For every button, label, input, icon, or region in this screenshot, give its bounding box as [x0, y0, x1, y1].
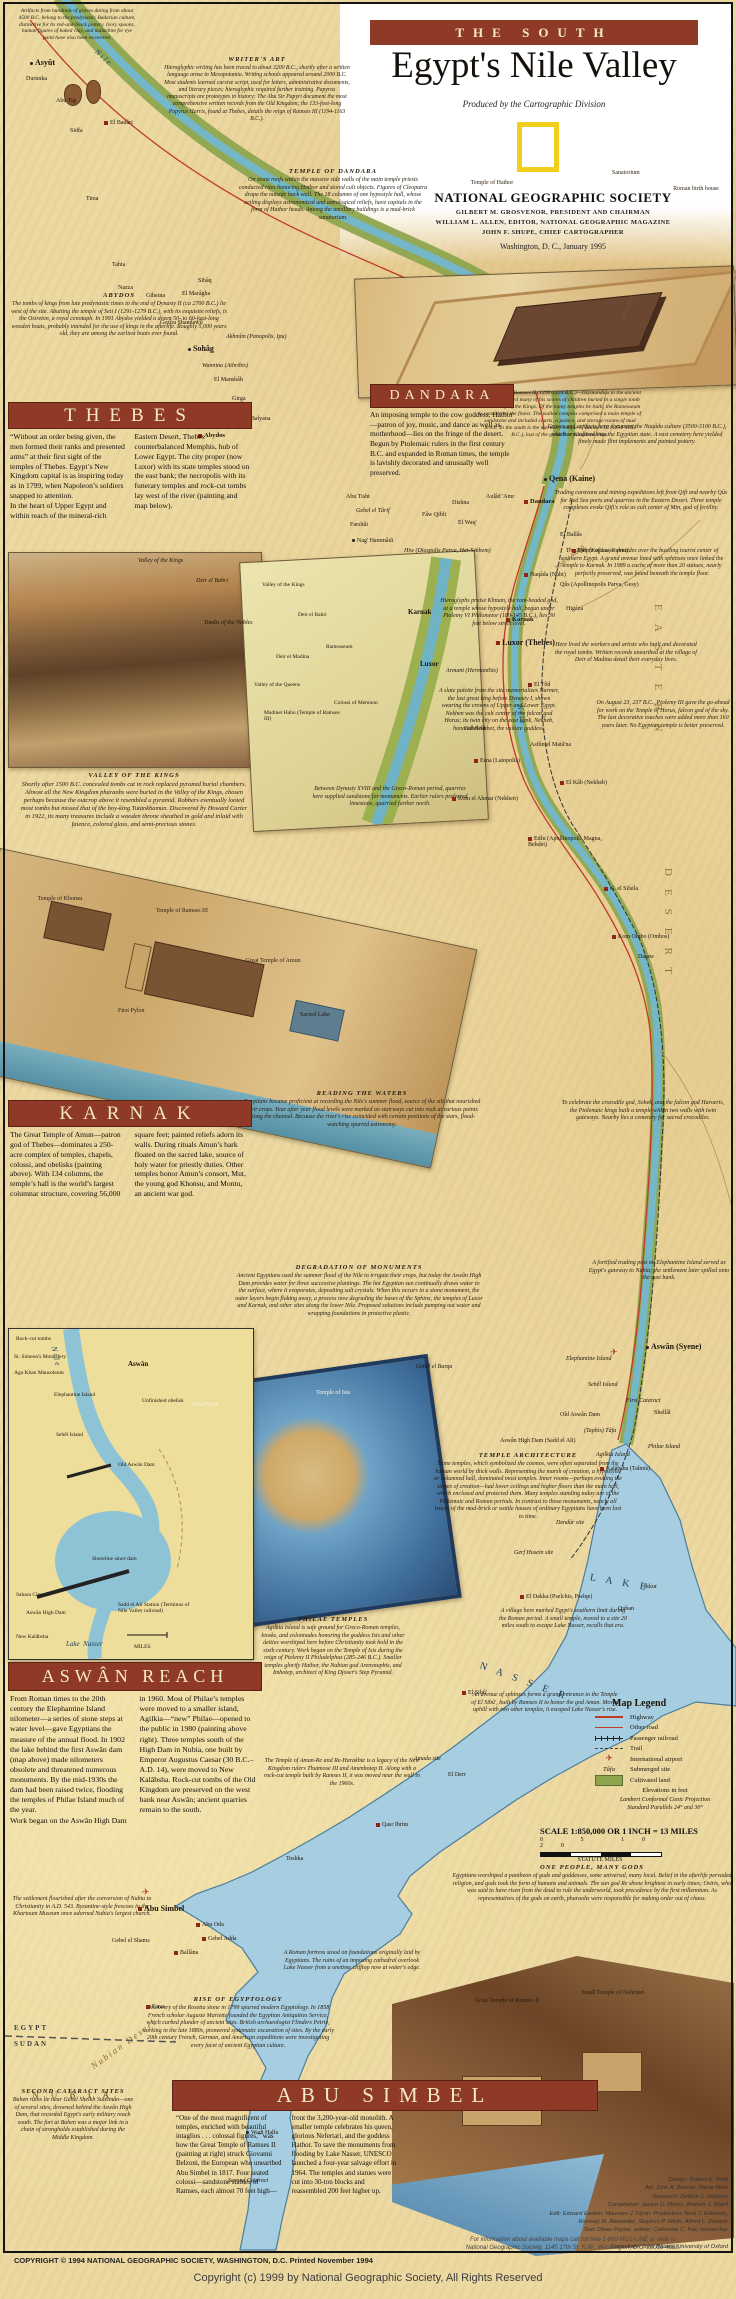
- caption-heading: DEGRADATION OF MONUMENTS: [234, 1264, 484, 1272]
- section-body-thebes: “Without an order being given, the men f…: [10, 432, 250, 548]
- caption-text: Agilkia Island is safe ground for Greco-…: [261, 1625, 404, 1676]
- map-label: Gebel el Târif: [356, 508, 390, 514]
- map-label: Durunka: [26, 76, 47, 82]
- map-label: El Sibû': [462, 1690, 487, 1696]
- map-label: Wannina (Athribis): [202, 363, 248, 369]
- map-label: Aswân (Syene): [646, 1342, 701, 1351]
- caption-text: Shortly after 1500 B.C. concealed tombs …: [21, 781, 247, 828]
- map-label: Qena (Kaine): [544, 474, 595, 483]
- map-label: Ballâna: [174, 1950, 198, 1956]
- map-label: Great Temple of Ramses II: [474, 1998, 540, 2005]
- road-symbol: [594, 1724, 624, 1732]
- map-label: Fâw Qibli: [422, 512, 446, 518]
- legend-label: Passenger railroad: [630, 1735, 678, 1742]
- map-label: Aswân: [128, 1360, 148, 1368]
- map-label: Elephantine Island: [566, 1356, 612, 1362]
- map-label: Dendûr site: [556, 1520, 584, 1526]
- map-label: Sihâq: [198, 278, 212, 284]
- map-label: EGYPT: [14, 2024, 48, 2032]
- map-label: Naqâda (Nubt): [524, 572, 566, 578]
- map-poster: THE SOUTH Egypt's Nile Valley Produced b…: [0, 0, 736, 2299]
- temple-structure: [43, 901, 112, 951]
- caption-text: Ancient Egyptians used the summer flood …: [235, 1273, 483, 1317]
- map-label: Sidfa: [70, 128, 83, 134]
- great-temple-of-amun-shape: [144, 941, 265, 1017]
- caption-heading: ONE PEOPLE, MANY GODS: [452, 1864, 732, 1872]
- map-label: Valley of the Queens: [254, 682, 300, 688]
- map-label: Amada site: [414, 1756, 441, 1762]
- caption-artifacts: Artifacts from hundreds of graves dating…: [16, 8, 138, 42]
- caption-village: A village here marked Egypt's southern l…: [498, 1608, 628, 1631]
- map-label: Akhmîm (Panopolis, Ipu): [226, 334, 287, 340]
- map-label: El Tôd: [528, 682, 550, 688]
- map-label: Abu Tig: [56, 98, 76, 104]
- sacred-lake-shape: [289, 1000, 345, 1042]
- caption-esna: Hieroglyphs praise Khnum, the ram-headed…: [440, 598, 558, 628]
- map-label: Sanatorium: [612, 170, 640, 177]
- legend-label: Cultivated land: [630, 1777, 670, 1784]
- map-label: Kalâbsha (Talmis): [600, 1466, 650, 1472]
- karnak-col1: The Great Temple of Amun—patron god of T…: [10, 1130, 121, 1198]
- map-legend: Map Legend Highway Other road Passenger …: [594, 1698, 736, 1813]
- map-label: El Ballâs: [560, 532, 582, 538]
- map-label: Abu Simbel: [138, 1904, 184, 1913]
- map-label: Luxor: [420, 660, 439, 668]
- legend-row-railroad: Passenger railroad: [594, 1734, 736, 1742]
- caption-one-people-many-gods: ONE PEOPLE, MANY GODSEgyptians worshiped…: [452, 1864, 732, 1903]
- map-label: Sahara City: [16, 1592, 42, 1598]
- map-label: Kom el Ahmar (Nekhen): [452, 796, 518, 802]
- caption-nekhen: A slate palette from the site memorializ…: [438, 688, 560, 733]
- legend-label: Trail: [630, 1745, 642, 1752]
- map-label: First Pylon: [192, 1402, 219, 1408]
- caption-text: Hieroglyphs praise Khnum, the ram-headed…: [440, 598, 558, 627]
- legend-row-highway: Highway: [594, 1713, 736, 1721]
- map-label: Old Aswân Dam: [560, 1412, 600, 1418]
- ordering-info: For information about available maps cal…: [418, 2236, 728, 2253]
- aswan-col2: Most of Philae’s temples were moved to a…: [140, 1694, 256, 1814]
- caption-heading: RISE OF EGYPTOLOGY: [140, 1996, 336, 2004]
- map-label: MILES: [134, 1644, 151, 1650]
- map-label: Asyût: [30, 58, 55, 67]
- section-header-dandara: DANDARA: [370, 384, 514, 408]
- section-header-thebes: THEBES: [8, 402, 252, 429]
- dateline: Washington, D. C., January 1995: [393, 242, 713, 251]
- legend-label: Other road: [630, 1724, 658, 1731]
- caption-reading-the-waters: READING THE WATERSEgyptians became profi…: [242, 1090, 482, 1129]
- caption-text: A village here marked Egypt's southern l…: [499, 1608, 627, 1629]
- map-label: Abu Tisht: [346, 494, 370, 500]
- legend-row-airport: ✈International airport: [594, 1755, 736, 1763]
- map-label: Gebelein: [464, 726, 486, 732]
- map-label: Gebel Adda: [202, 1936, 237, 1942]
- map-label: Armant (Hermonthis): [446, 668, 498, 674]
- map-label: Gezîra Shandawîl: [160, 320, 203, 326]
- page-title: Egypt's Nile Valley: [350, 47, 718, 86]
- copyright-1999: Copyright (c) 1999 by National Geographi…: [0, 2272, 736, 2284]
- caption-qift: Trading caravans and mining expeditions …: [552, 490, 730, 513]
- section-body-karnak: The Great Temple of Amun—patron god of T…: [10, 1130, 250, 1248]
- caption-quarries: Between Dynasty XVIII and the Greco-Roma…: [312, 786, 468, 809]
- map-label: Deir el Bahri: [298, 612, 327, 618]
- caption-temple-architecture: TEMPLE ARCHITECTUREStone temples, which …: [432, 1452, 624, 1521]
- map-label: SUDAN: [14, 2040, 48, 2048]
- national-geographic-logo-icon: [517, 122, 559, 172]
- map-label: Esna (Latopolis): [474, 758, 520, 764]
- map-label: Aswân High Dam: [26, 1610, 66, 1616]
- map-label: El Marâgha: [182, 291, 210, 297]
- map-label: Philae Island: [648, 1444, 680, 1450]
- submerged-site-sample: Tâfa: [594, 1766, 624, 1774]
- legend-elevations-note: Elevations in feet: [594, 1787, 736, 1794]
- map-label: El Kâb (Nekheb): [560, 780, 607, 786]
- scale-block: SCALE 1:850,000 OR 1 INCH = 13 MILES 0 5…: [540, 1826, 720, 1863]
- caption-degradation: DEGRADATION OF MONUMENTSAncient Egyptian…: [234, 1264, 484, 1318]
- dandara-temple-illustration: [354, 265, 736, 398]
- map-label: Karnak: [408, 608, 431, 616]
- map-label: Nag' Hammâdi: [352, 538, 393, 544]
- section-body-dandara: An imposing temple to the cow goddess, H…: [370, 410, 514, 477]
- map-label: Temple of Khonsu: [34, 896, 86, 903]
- caption-philae-temples: PHILAE TEMPLESAgilkia Island is safe gro…: [258, 1616, 408, 1678]
- caption-kom-ombo: To celebrate the crocodile god, Sobek, a…: [558, 1100, 728, 1123]
- map-label: Qûs (Apollinopolis Parva, Gesy): [560, 582, 646, 588]
- caption-text: A fortified trading post on Elephantine …: [589, 1260, 730, 1281]
- caption-heading: TEMPLE OF DANDARA: [238, 168, 428, 176]
- map-label: Sohâg: [188, 344, 214, 353]
- section-header-karnak: KARNAK: [8, 1100, 252, 1127]
- map-label: Gebel el Barqa: [416, 1364, 452, 1370]
- map-label: El Manshâh: [214, 377, 243, 383]
- section-header-aswan-reach: ASWÂN REACH: [8, 1662, 262, 1691]
- map-label: Great Temple of Amun: [238, 958, 308, 965]
- scale-text: SCALE 1:850,000 OR 1 INCH = 13 MILES: [540, 1826, 720, 1836]
- caption-heading: WRITER'S ART: [164, 56, 350, 64]
- map-label: Luxor (Thebes): [496, 638, 555, 647]
- map-label: Small Temple of Nefertari: [580, 1990, 646, 1997]
- karnak-col2: square feet; painted reliefs adorn its w…: [135, 1130, 246, 1198]
- caption-text: A slate palette from the site memorializ…: [439, 688, 559, 732]
- map-label: DESERT: [662, 868, 674, 987]
- legend-row-cultivated: Cultivated land: [594, 1776, 736, 1784]
- airport-icon: ✈: [594, 1755, 624, 1763]
- map-label: Gerf Husein site: [514, 1550, 553, 1556]
- map-label: Madinet Habu (Temple of Ramses III): [264, 710, 344, 722]
- pottery-illustration: [86, 80, 101, 104]
- map-label: N U B I A: [32, 2090, 114, 2100]
- map-label: Lake Nasser: [66, 1640, 103, 1648]
- caption-writers-art: WRITER'S ARTHieroglyphic writing has bee…: [164, 56, 350, 123]
- railroad-symbol: [594, 1734, 624, 1742]
- caption-rise-of-egyptology: RISE OF EGYPTOLOGYDiscovery of the Roset…: [140, 1996, 336, 2050]
- map-label: El Dakka (Pselchis, Pselqe): [520, 1594, 592, 1600]
- map-label: Sehêl Island: [588, 1382, 618, 1388]
- map-label: Hiw (Diospolis Parva, Het-Sekhem): [404, 548, 494, 554]
- map-label: New Kalâbsha: [16, 1634, 48, 1640]
- caption-text: Egyptians became proficient at recording…: [244, 1099, 481, 1128]
- trail-symbol: [594, 1745, 624, 1753]
- map-label: Higâza: [566, 606, 583, 612]
- map-label: Sehêl Island: [56, 1432, 83, 1438]
- map-label: Dandara: [524, 498, 555, 505]
- map-label: Tombs of the Nobles: [204, 620, 253, 626]
- caption-deir-el-madina: Here lived the workers and artists who b…: [552, 642, 700, 665]
- map-label: Colossi of Memnon: [334, 700, 378, 706]
- highway-symbol: [594, 1713, 624, 1721]
- legend-row-other-road: Other road: [594, 1724, 736, 1732]
- map-label: Daraw: [638, 954, 654, 960]
- caption-qasr-ibrim: A Roman fortress stood on foundations or…: [282, 1950, 422, 1973]
- caption-settlement: The settlement flourished after the conv…: [12, 1896, 152, 1919]
- thebes-col1: “Without an order being given, the men f…: [10, 432, 125, 520]
- map-label: Shoreline since dam: [92, 1556, 137, 1562]
- thebes-necropolis-painting: [8, 552, 262, 768]
- section-body-aswan: From Roman times to the 20th century the…: [10, 1694, 260, 1880]
- caption-text: Discovery of the Rosetta stone in 1799 s…: [142, 2005, 334, 2049]
- map-label: Agilkia Island: [596, 1452, 630, 1458]
- legend-row-submerged: TâfaSubmerged site: [594, 1766, 736, 1774]
- scale-units: STATUTE MILES: [540, 1857, 660, 1863]
- map-label: Toshka: [286, 1856, 303, 1862]
- caption-text: Trading caravans and mining expeditions …: [555, 490, 727, 511]
- caption-elephantine: A fortified trading post on Elephantine …: [588, 1260, 730, 1283]
- map-label: Edfu (Apollinopolis Magna, Behdet): [528, 836, 622, 848]
- caption-text: Stone temples, which symbolized the cosm…: [434, 1461, 622, 1520]
- map-label: Tahta: [112, 262, 125, 268]
- section-body-abu-simbel: “One of the most magnificent of temples,…: [176, 2114, 398, 2250]
- map-label: Aswân High Dam (Sadd el Ali): [500, 1438, 576, 1444]
- legend-label: International airport: [630, 1756, 682, 1763]
- caption-text: Here lived the workers and artists who b…: [555, 642, 697, 663]
- map-label: Nazza: [118, 285, 133, 291]
- map-label: ✈: [142, 1888, 150, 1898]
- map-label: Valley of the Kings: [262, 582, 305, 588]
- map-label: Asfûn el Matâ'na: [530, 742, 571, 748]
- map-label: Sacred Lake: [300, 1012, 330, 1019]
- society-name: NATIONAL GEOGRAPHIC SOCIETY: [393, 190, 713, 206]
- map-label: Shellâl: [654, 1410, 671, 1416]
- caption-text: The settlement flourished after the conv…: [13, 1896, 152, 1917]
- caption-heading: READING THE WATERS: [242, 1090, 482, 1098]
- caption-heading: PHILAE TEMPLES: [258, 1616, 408, 1624]
- section-header-abu-simbel: ABU SIMBEL: [172, 2080, 598, 2111]
- caption-text: Buhen ruins lie near Gebel Sheikh Suleim…: [13, 2097, 133, 2141]
- map-label: Temple of Isis: [316, 1390, 350, 1396]
- legend-projection-note: Lambert Conformal Conic Projection Stand…: [594, 1797, 736, 1813]
- map-label: Quban: [618, 1606, 634, 1612]
- map-label: Temple of Ramses III: [152, 908, 212, 915]
- caption-text: Hieroglyphic writing has been traced to …: [164, 65, 350, 122]
- map-label: G. el Silsila: [604, 886, 638, 892]
- caption-text: Between Dynasty XVIII and the Greco-Roma…: [313, 786, 468, 807]
- map-label: Aga Khan Mausoleum: [14, 1370, 64, 1376]
- legend-label: Highway: [630, 1714, 654, 1721]
- caption-amada: The Temple of Amun-Re and Re-Harakhte is…: [262, 1758, 422, 1788]
- map-label: Elephantine Island: [54, 1392, 95, 1398]
- masthead-credits: GILBERT M. GROSVENOR, PRESIDENT AND CHAI…: [393, 208, 713, 237]
- caption-text: Artifacts from hundreds of graves dating…: [19, 8, 136, 41]
- map-label: Sadd el Ali Station (Terminus of Nile Va…: [118, 1602, 194, 1614]
- caption-text: The Temple of Amun-Re and Re-Harakhte is…: [264, 1758, 420, 1787]
- map-label: Kom Ombo (Ombos): [612, 934, 669, 940]
- map-label: First Cataract: [626, 1398, 661, 1404]
- map-label: Old Aswân Dam: [118, 1462, 155, 1468]
- copyright-1994: COPYRIGHT © 1994 NATIONAL GEOGRAPHIC SOC…: [14, 2256, 373, 2265]
- scale-ticks: 0 5 10 20: [540, 1837, 720, 1849]
- map-label: Abu Oda: [196, 1922, 224, 1928]
- abu-col1: “One of the most magnificent of temples,…: [176, 2114, 305, 2195]
- map-label: El Badâri: [104, 120, 133, 126]
- map-label: Farshût: [350, 522, 368, 528]
- map-label: Giheina: [146, 293, 165, 299]
- legend-label: Submerged site: [630, 1766, 670, 1773]
- map-label: Ramesseum: [326, 644, 353, 650]
- map-label: First Pylon: [118, 1008, 145, 1015]
- map-label: (Taphis) Tâfa: [584, 1428, 616, 1434]
- caption-abydos: ABYDOSThe tombs of kings from late predy…: [10, 292, 228, 339]
- caption-valley-of-the-kings: VALLEY OF THE KINGSShortly after 1500 B.…: [18, 772, 250, 829]
- map-label: Valley of the Kings: [138, 558, 183, 564]
- map-label: Dishna: [452, 500, 469, 506]
- map-label: Faras: [146, 2004, 165, 2010]
- legend-row-trail: Trail: [594, 1745, 736, 1753]
- map-label: Aulâd 'Amr: [486, 494, 514, 500]
- map-label: Karnak: [506, 616, 534, 623]
- map-label: Unfinished obelisk: [142, 1398, 184, 1404]
- caption-text: A Roman fortress stood on foundations or…: [284, 1950, 421, 1971]
- subtitle: Produced by the Cartographic Division: [400, 99, 668, 109]
- kicker-banner: THE SOUTH: [370, 20, 698, 45]
- cultivated-land-swatch: [594, 1776, 624, 1784]
- map-label: El Waq': [458, 520, 477, 526]
- map-label: Gebel el Shams: [112, 1938, 150, 1944]
- map-label: Temple of Hathor: [470, 180, 514, 187]
- map-label: Deir el Madina: [276, 654, 309, 660]
- caption-text: To celebrate the crocodile god, Sobek, a…: [562, 1100, 724, 1121]
- map-label: Rock-cut tombs: [16, 1336, 51, 1342]
- map-label: EASTERN: [652, 604, 664, 745]
- map-label: El Derr: [448, 1772, 466, 1778]
- map-label: Tima: [86, 196, 98, 202]
- map-label: Deir el Bahri: [196, 578, 228, 584]
- map-label: Qasr Ibrim: [376, 1822, 408, 1828]
- caption-heading: VALLEY OF THE KINGS: [18, 772, 250, 780]
- legend-title: Map Legend: [594, 1698, 736, 1709]
- caption-text: Egyptians worshiped a pantheon of gods a…: [452, 1873, 731, 1902]
- abu-col2: the 3,200-year-old monolith. A smaller t…: [292, 2114, 397, 2195]
